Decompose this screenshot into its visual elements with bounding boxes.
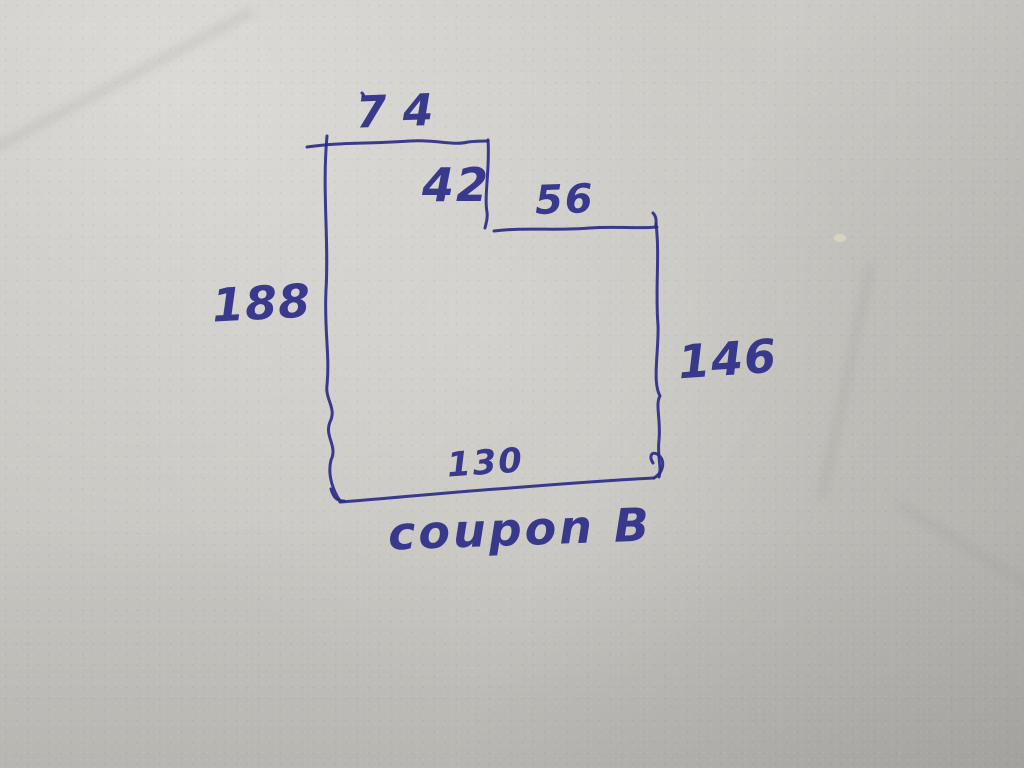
caption-label: coupon B xyxy=(387,501,652,556)
outline-top-right-edge xyxy=(494,227,657,231)
dimension-label-right: 146 xyxy=(677,333,779,386)
dimension-label-notch: 42 xyxy=(422,162,490,208)
coupon-sketch xyxy=(0,0,1024,768)
outline-top-edge xyxy=(307,141,488,147)
outline-right-edge xyxy=(656,224,660,477)
outline-left-edge xyxy=(325,136,340,501)
dimension-label-left: 188 xyxy=(211,277,312,328)
dimension-label-bottom: 130 xyxy=(446,443,525,482)
dimension-label-top-left: 74 xyxy=(355,88,450,135)
paper-sheet: 74 42 56 188 146 130 coupon B xyxy=(0,0,1024,768)
dimension-label-top-right: 56 xyxy=(534,179,595,221)
